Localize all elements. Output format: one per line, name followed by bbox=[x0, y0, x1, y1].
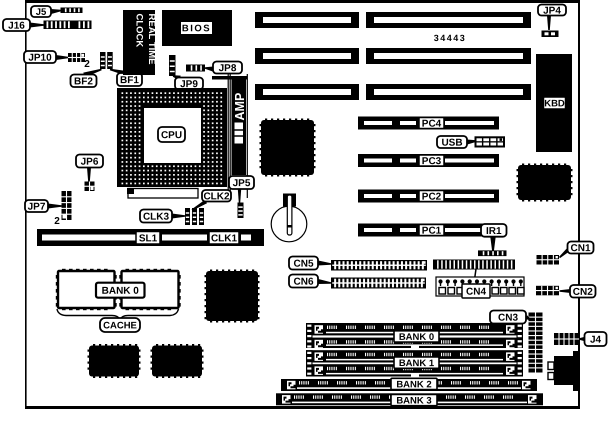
svg-text:PC3: PC3 bbox=[422, 156, 442, 167]
svg-text:PC2: PC2 bbox=[422, 192, 442, 203]
svg-text:BANK 0: BANK 0 bbox=[102, 286, 140, 297]
svg-text:BANK 1: BANK 1 bbox=[399, 358, 435, 369]
svg-text:J16: J16 bbox=[8, 21, 25, 32]
svg-text:CN5: CN5 bbox=[293, 259, 313, 270]
svg-text:SL1: SL1 bbox=[139, 233, 158, 244]
svg-text:JP6: JP6 bbox=[81, 157, 99, 168]
svg-text:JP10: JP10 bbox=[28, 53, 52, 64]
svg-text:2: 2 bbox=[54, 216, 60, 227]
svg-text:IR1: IR1 bbox=[486, 226, 502, 237]
svg-text:BANK 3: BANK 3 bbox=[396, 395, 431, 406]
svg-text:AMP: AMP bbox=[233, 93, 247, 121]
svg-text:BANK 0: BANK 0 bbox=[399, 332, 434, 343]
svg-text:CLK1: CLK1 bbox=[211, 233, 238, 244]
svg-text:CPU: CPU bbox=[161, 130, 182, 141]
svg-text:JP4: JP4 bbox=[543, 6, 561, 17]
svg-text:CACHE: CACHE bbox=[103, 320, 137, 331]
svg-text:CN1: CN1 bbox=[570, 243, 590, 254]
svg-text:J5: J5 bbox=[36, 7, 47, 18]
svg-text:CN6: CN6 bbox=[293, 277, 313, 288]
svg-text:BF1: BF1 bbox=[120, 75, 139, 86]
svg-text:2: 2 bbox=[84, 59, 90, 70]
svg-text:BF2: BF2 bbox=[74, 76, 93, 87]
svg-text:JP5: JP5 bbox=[233, 178, 251, 189]
svg-text:BANK 2: BANK 2 bbox=[396, 379, 431, 390]
svg-text:CN3: CN3 bbox=[498, 313, 518, 324]
svg-text:CLOCK: CLOCK bbox=[134, 14, 145, 48]
svg-text:J4: J4 bbox=[590, 335, 602, 346]
svg-text:JP8: JP8 bbox=[219, 63, 237, 74]
svg-text:CN4: CN4 bbox=[466, 287, 486, 298]
svg-text:JP7: JP7 bbox=[28, 202, 46, 213]
svg-text:34443: 34443 bbox=[434, 33, 467, 43]
svg-text:KBD: KBD bbox=[544, 98, 565, 109]
svg-text:CLK2: CLK2 bbox=[203, 191, 230, 202]
svg-text:REAL TIME: REAL TIME bbox=[146, 14, 157, 65]
svg-text:BIOS: BIOS bbox=[182, 23, 211, 34]
svg-text:PC1: PC1 bbox=[422, 226, 442, 237]
svg-text:USB: USB bbox=[441, 138, 462, 149]
svg-text:CLK3: CLK3 bbox=[143, 212, 170, 223]
svg-text:CN2: CN2 bbox=[573, 287, 593, 298]
svg-text:PC4: PC4 bbox=[422, 119, 442, 130]
